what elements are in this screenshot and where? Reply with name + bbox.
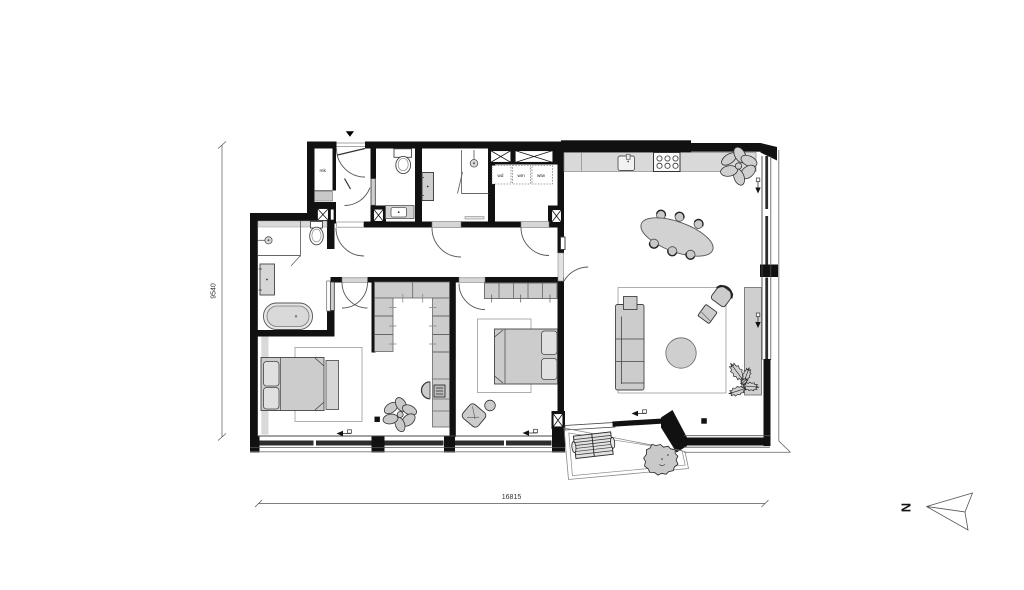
svg-text:16815: 16815: [502, 494, 522, 501]
svg-text:N: N: [898, 503, 913, 512]
svg-text:wd: wd: [498, 173, 504, 178]
svg-text:wm: wm: [518, 173, 525, 178]
svg-text:wtw: wtw: [537, 173, 546, 178]
svg-text:mk: mk: [320, 168, 327, 174]
svg-text:9540: 9540: [211, 283, 218, 299]
